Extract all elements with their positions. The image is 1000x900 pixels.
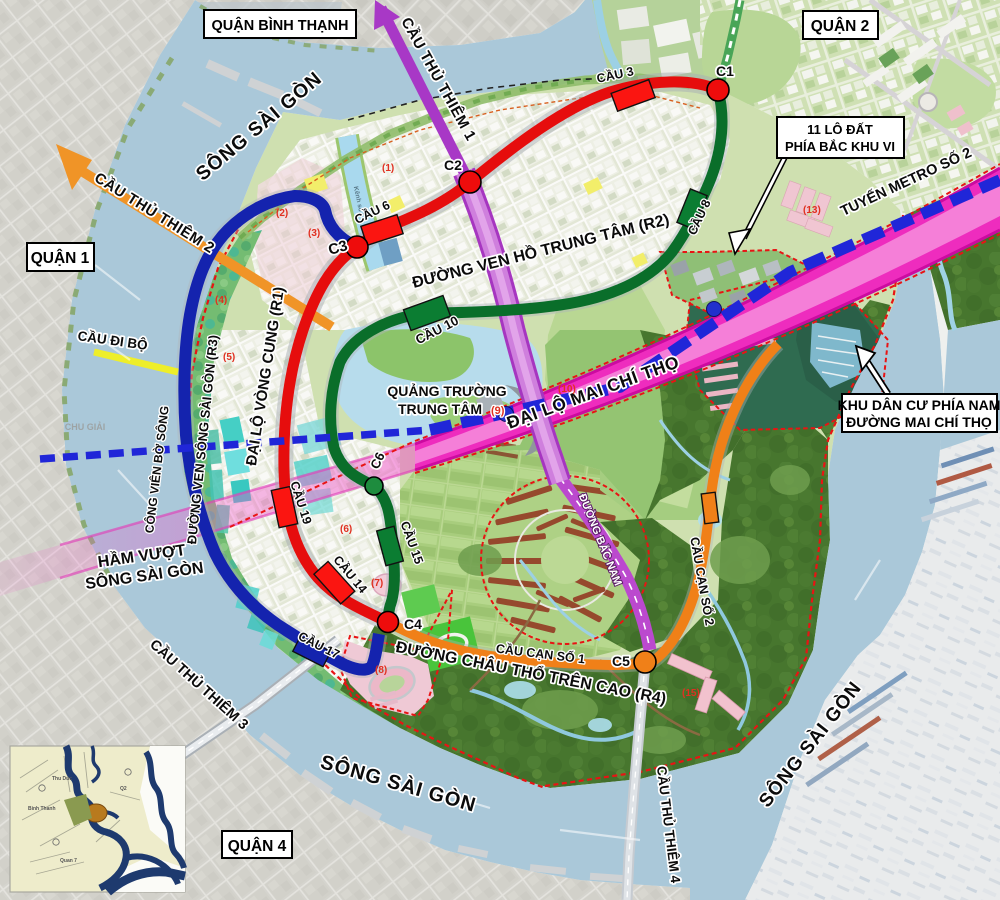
svg-text:(2): (2)	[276, 208, 288, 219]
svg-text:C4: C4	[404, 616, 422, 632]
svg-text:Thu Duc: Thu Duc	[52, 776, 72, 782]
svg-text:PHÍA BẮC KHU VI: PHÍA BẮC KHU VI	[785, 139, 895, 154]
svg-text:C5: C5	[612, 653, 630, 669]
svg-text:Q2: Q2	[120, 786, 127, 792]
svg-text:C2: C2	[444, 157, 462, 173]
svg-text:QUẬN BÌNH THẠNH: QUẬN BÌNH THẠNH	[212, 16, 349, 34]
svg-text:Quan 7: Quan 7	[60, 858, 77, 864]
svg-text:(8): (8)	[375, 665, 387, 676]
svg-text:(13): (13)	[803, 205, 821, 216]
svg-text:(10): (10)	[558, 384, 576, 395]
svg-text:11 LÔ ĐẤT: 11 LÔ ĐẤT	[807, 122, 873, 137]
svg-text:Binh Thanh: Binh Thanh	[28, 806, 56, 812]
svg-text:QUẢNG TRƯỜNG: QUẢNG TRƯỜNG	[387, 382, 506, 399]
svg-text:ĐƯỜNG MAI CHÍ THỌ: ĐƯỜNG MAI CHÍ THỌ	[846, 413, 992, 430]
svg-text:(5): (5)	[223, 352, 235, 363]
svg-text:(4): (4)	[215, 295, 227, 306]
svg-text:C1: C1	[716, 63, 734, 79]
svg-text:QUẬN 4: QUẬN 4	[228, 837, 287, 855]
svg-text:(1): (1)	[382, 163, 394, 174]
svg-text:TRUNG TÂM: TRUNG TÂM	[398, 400, 482, 417]
svg-text:(15): (15)	[682, 688, 700, 699]
svg-text:QUẬN 2: QUẬN 2	[811, 17, 870, 35]
svg-text:CHU GIẢI: CHU GIẢI	[65, 421, 106, 432]
svg-text:(9): (9)	[491, 405, 505, 417]
svg-text:KHU DÂN CƯ PHÍA NAM: KHU DÂN CƯ PHÍA NAM	[838, 396, 1000, 413]
svg-text:(3): (3)	[308, 228, 320, 239]
svg-text:(6): (6)	[340, 524, 352, 535]
svg-text:(7): (7)	[371, 578, 383, 589]
svg-text:QUẬN 1: QUẬN 1	[31, 249, 90, 267]
